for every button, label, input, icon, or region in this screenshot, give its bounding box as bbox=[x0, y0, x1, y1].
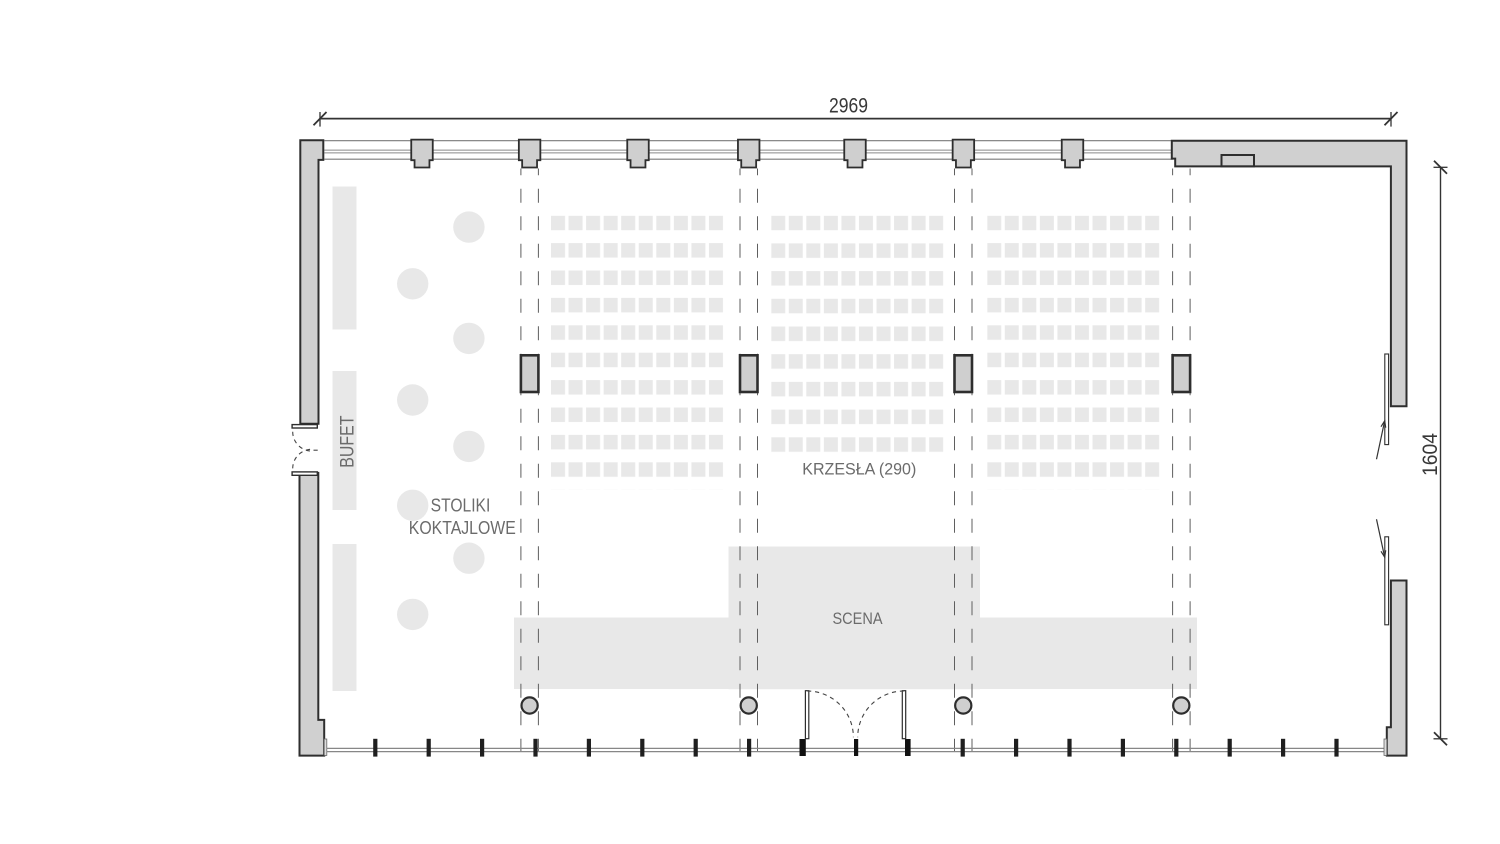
svg-text:BUFET: BUFET bbox=[337, 415, 358, 468]
svg-text:STOLIKI: STOLIKI bbox=[431, 495, 491, 516]
svg-text:2969: 2969 bbox=[829, 94, 868, 118]
svg-text:SCENA: SCENA bbox=[833, 609, 884, 628]
svg-text:KOKTAJLOWE: KOKTAJLOWE bbox=[409, 517, 516, 538]
svg-text:KRZESŁA (290): KRZESŁA (290) bbox=[802, 460, 916, 479]
svg-text:1604: 1604 bbox=[1418, 433, 1442, 476]
